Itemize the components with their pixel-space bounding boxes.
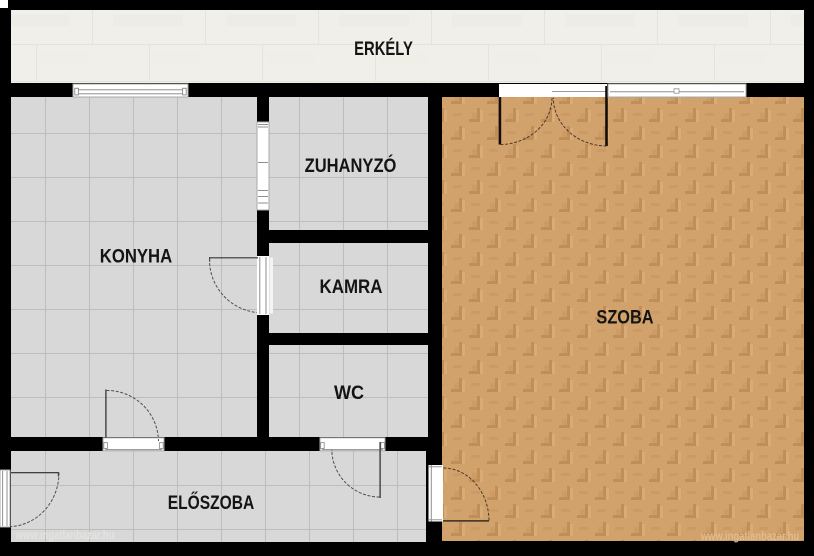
- svg-text:KAMRA: KAMRA: [320, 276, 383, 297]
- svg-text:www.ingatlanbazar.hu: www.ingatlanbazar.hu: [15, 529, 114, 542]
- svg-text:ZUHANYZÓ: ZUHANYZÓ: [305, 154, 397, 176]
- svg-text:ERKÉLY: ERKÉLY: [354, 38, 413, 59]
- svg-text:www.ingatlanbazar.hu: www.ingatlanbazar.hu: [700, 530, 799, 543]
- svg-text:WC: WC: [334, 382, 364, 404]
- svg-text:KONYHA: KONYHA: [100, 246, 172, 267]
- svg-text:SZOBA: SZOBA: [596, 306, 653, 327]
- svg-text:ELŐSZOBA: ELŐSZOBA: [168, 492, 255, 514]
